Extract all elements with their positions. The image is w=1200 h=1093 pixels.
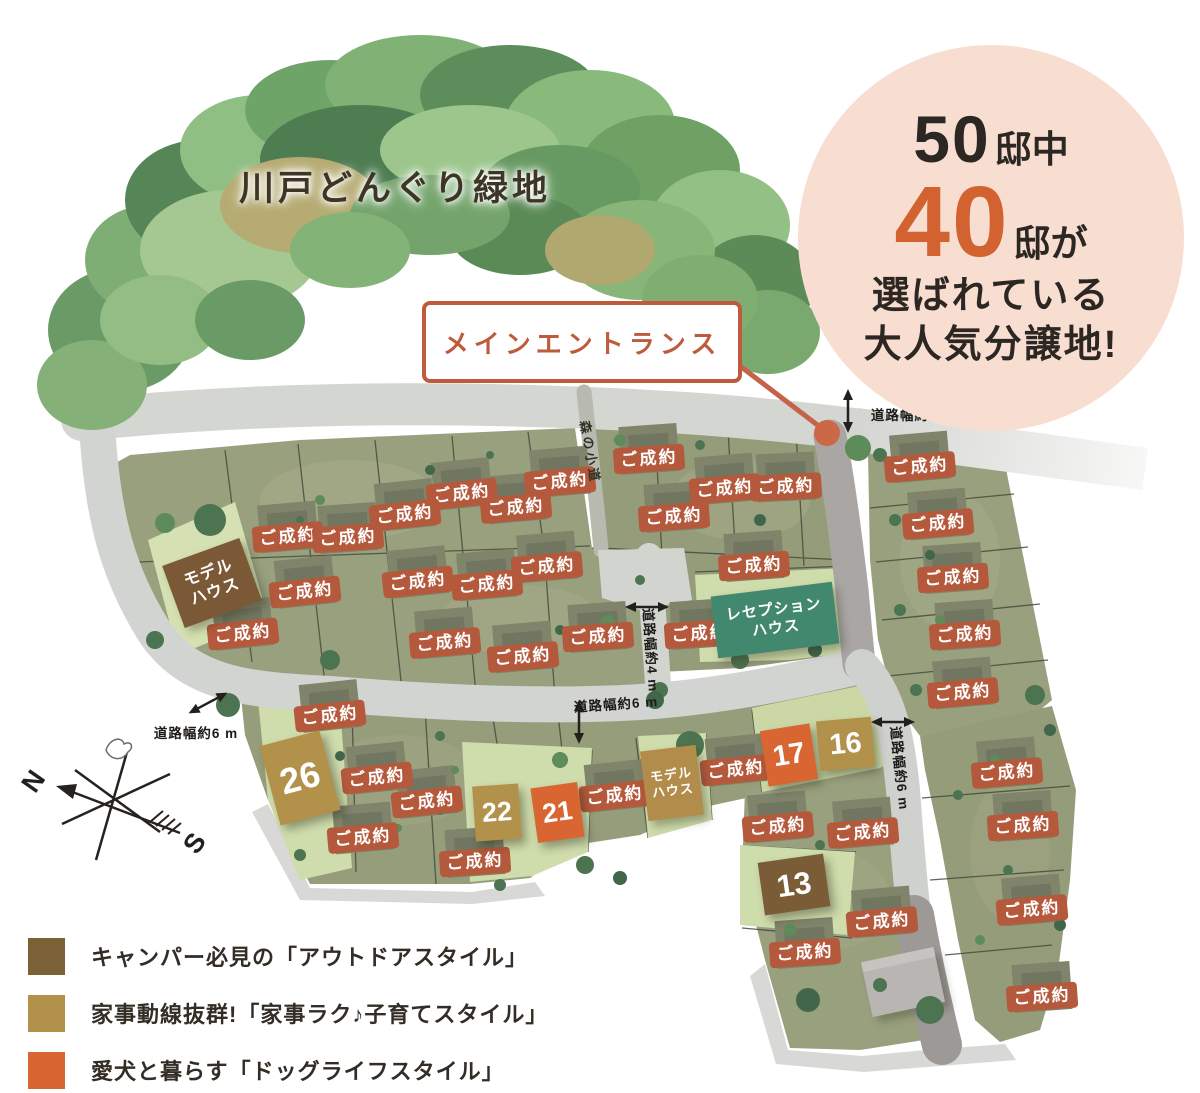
road-plaza (598, 548, 692, 610)
badge-tagline-2: 大人気分譲地! (864, 321, 1119, 370)
greenbelt-title: 川戸どんぐり緑地 (205, 160, 585, 211)
badge-sold-number: 40 (894, 172, 1009, 272)
subdivision-map-page: 川戸どんぐり緑地 メインエントランス 50邸中 40邸が 選ばれている 大人気分… (0, 0, 1200, 1093)
legend-swatch-0 (28, 938, 65, 975)
legend-row-2: 愛犬と暮らす「ドッグライフスタイル」 (28, 1050, 548, 1090)
legend: キャンパー必見の「アウトドアスタイル」家事動線抜群!「家事ラク♪子育てスタイル」… (28, 936, 548, 1093)
badge-line-total: 50邸中 (913, 106, 1068, 172)
badge-line-sold: 40邸が (894, 172, 1087, 272)
badge-total-suffix: 邸中 (995, 131, 1069, 168)
legend-swatch-2 (28, 1052, 65, 1089)
badge-tagline-1: 選ばれている (872, 272, 1111, 321)
badge-sold-suffix: 邸が (1014, 225, 1088, 262)
legend-text-0: キャンパー必見の「アウトドアスタイル」 (91, 940, 528, 972)
legend-row-0: キャンパー必見の「アウトドアスタイル」 (28, 936, 548, 976)
badge-total-number: 50 (913, 106, 990, 172)
compass-icon (56, 739, 181, 860)
sales-badge: 50邸中 40邸が 選ばれている 大人気分譲地! (798, 45, 1184, 431)
legend-row-1: 家事動線抜群!「家事ラク♪子育てスタイル」 (28, 993, 548, 1033)
legend-swatch-1 (28, 995, 65, 1032)
main-entrance-label: メインエントランス (422, 301, 742, 383)
legend-text-1: 家事動線抜群!「家事ラク♪子育てスタイル」 (91, 997, 548, 1029)
legend-text-2: 愛犬と暮らす「ドッグライフスタイル」 (91, 1054, 505, 1086)
